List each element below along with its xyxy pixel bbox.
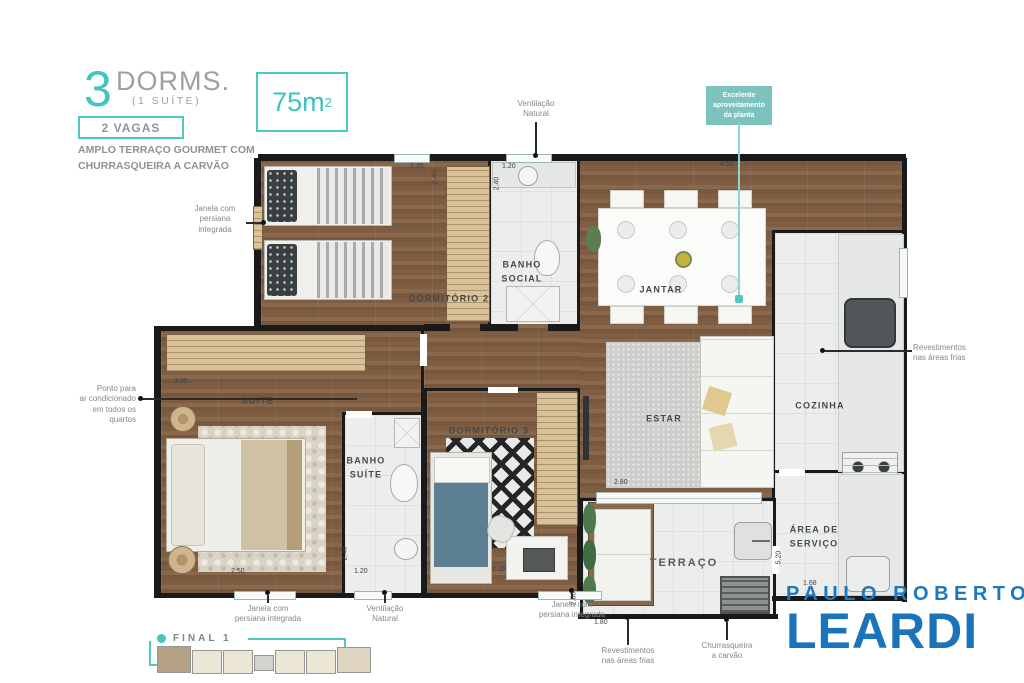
- toilet-icon: [390, 464, 418, 502]
- plate-icon: [721, 221, 739, 239]
- dimension: 3.95: [174, 378, 188, 385]
- ann-line: persiana: [184, 214, 246, 224]
- header-dorms-label: DORMS.: [116, 66, 230, 97]
- label-jantar: JANTAR: [639, 283, 682, 297]
- callout-line: da planta: [708, 111, 770, 121]
- pillow-icon: [267, 244, 297, 296]
- annotation-revestimentos-bottom: Revestimentos nas áreas frias: [590, 646, 666, 667]
- ann-line: nas áreas frias: [913, 353, 997, 363]
- annotation-revestimentos-right: Revestimentos nas áreas frias: [913, 343, 997, 364]
- plant-icon: [170, 406, 196, 432]
- room-hall: [424, 324, 580, 388]
- annotation-ventilacao-top: Ventilação Natural: [500, 99, 572, 120]
- blanket-striped-icon: [317, 168, 389, 224]
- annotation-ponto-ar: Ponto para ar condicionado em todos os q…: [56, 384, 136, 426]
- sink-icon: [518, 166, 538, 186]
- ann-line: persiana integrada: [530, 610, 614, 620]
- tagline-line2: CHURRASQUEIRA A CARVÃO: [78, 158, 255, 174]
- keyplan-dot: [157, 634, 166, 643]
- keyplan-building-footprint: [157, 646, 371, 674]
- keyplan-core: [254, 655, 274, 671]
- label-line: SOCIAL: [501, 272, 542, 286]
- leardi-logo: PAULO ROBERTO LEARDI: [786, 583, 1024, 656]
- leader-line: [627, 620, 629, 645]
- bed-double-icon: [166, 438, 306, 552]
- pillow-icon: [434, 457, 490, 483]
- door-suite: [420, 334, 427, 366]
- keyplan-label: FINAL 1: [173, 633, 232, 644]
- chair-icon: [718, 190, 752, 208]
- leader-dot: [261, 220, 266, 225]
- centerpiece-icon: [675, 251, 692, 268]
- leader-line: [141, 398, 357, 400]
- ann-line: Ponto para: [56, 384, 136, 394]
- churrasqueira-icon: [720, 576, 770, 614]
- cooktop-icon: [844, 298, 896, 348]
- sliding-door-rail: [597, 498, 761, 499]
- label-line: SUÍTE: [347, 468, 386, 482]
- plant-icon: [583, 504, 596, 534]
- wall-hall-top-b: [480, 324, 518, 331]
- label-line: BANHO: [501, 259, 542, 273]
- callout-leader-dot: [735, 295, 743, 303]
- pillow-icon: [708, 422, 737, 451]
- area-value: 75m: [272, 87, 325, 118]
- leader-line: [726, 622, 728, 640]
- dimension: 1.35: [410, 163, 424, 170]
- annotation-janela-bottom2: Janela com persiana integrada: [530, 600, 614, 621]
- keyplan-unit-highlighted: [157, 646, 191, 673]
- window-banho-social-top: [506, 154, 552, 163]
- ann-line: a carvão: [692, 651, 762, 661]
- keyplan-unit: [223, 650, 253, 674]
- ann-line: Ventilação: [500, 99, 572, 109]
- pillow-icon: [267, 170, 297, 222]
- label-line: SERVIÇO: [790, 537, 839, 551]
- dimension: 2.40: [431, 171, 438, 185]
- ann-line: Janela com: [530, 600, 614, 610]
- plant-icon: [586, 226, 601, 252]
- ann-line: Janela com: [184, 204, 246, 214]
- bed-single-1-icon: [264, 166, 392, 226]
- ann-line: Janela com: [226, 604, 310, 614]
- ann-line: persiana integrada: [226, 614, 310, 624]
- mattress-icon: [594, 509, 651, 601]
- dimension: 2.50: [231, 568, 245, 575]
- shower-icon: [506, 286, 560, 322]
- dimension: 2.15: [492, 566, 506, 573]
- ann-line: Churrasqueira: [692, 641, 762, 651]
- window-dorm2-top: [394, 154, 430, 163]
- header-tagline: AMPLO TERRAÇO GOURMET COM CHURRASQUEIRA …: [78, 142, 255, 175]
- plate-icon: [617, 221, 635, 239]
- ann-line: quartos: [56, 415, 136, 425]
- dimension: 2.45: [341, 547, 348, 561]
- pillow-icon: [171, 444, 205, 546]
- wall-hall-top-a: [424, 324, 450, 331]
- keyplan-unit: [192, 650, 222, 674]
- plate-icon: [669, 221, 687, 239]
- wall-left-suite: [154, 326, 159, 596]
- logo-line2: LEARDI: [786, 608, 1024, 656]
- callout-line: aproveitamento: [708, 101, 770, 111]
- leader-line: [535, 122, 537, 155]
- dimension: 2.80: [614, 479, 628, 486]
- leader-dot: [820, 348, 825, 353]
- plate-icon: [721, 275, 739, 293]
- floorplan-page: 3 DORMS. (1 SUÍTE) 2 VAGAS AMPLO TERRAÇO…: [0, 0, 1024, 683]
- tv-panel-icon: [583, 396, 589, 460]
- label-estar: ESTAR: [646, 412, 682, 426]
- leader-dot: [382, 590, 387, 595]
- annotation-janela-bottom1: Janela com persiana integrada: [226, 604, 310, 625]
- ann-line: integrada: [184, 225, 246, 235]
- chair-icon: [610, 306, 644, 324]
- blanket-icon: [434, 483, 488, 567]
- keyplan-unit: [306, 650, 336, 674]
- area-badge: 75m2: [256, 72, 348, 132]
- wall-hall-top-c: [548, 324, 580, 331]
- header-suite-label: (1 SUÍTE): [132, 95, 201, 107]
- chair-icon: [664, 306, 698, 324]
- keyplan-unit: [275, 650, 305, 674]
- sofa-icon: [700, 336, 774, 488]
- dimension: 2.40: [493, 177, 500, 191]
- blanket-icon: [241, 440, 287, 550]
- leader-line: [384, 595, 386, 603]
- label-dorm3: DORMITÓRIO 3: [449, 424, 529, 438]
- dimension: 5.20: [775, 551, 782, 565]
- plant-icon: [583, 540, 596, 570]
- ann-line: Revestimentos: [913, 343, 997, 353]
- faucet-icon: [752, 540, 770, 542]
- vagas-badge: 2 VAGAS: [78, 116, 184, 139]
- chair-icon: [718, 306, 752, 324]
- wall-top: [258, 154, 906, 159]
- ann-line: Natural: [356, 614, 414, 624]
- ann-line: Natural: [500, 109, 572, 119]
- pillow-icon: [702, 386, 732, 416]
- desk-icon: [506, 536, 568, 580]
- callout-box: Excelente aproveitamento da planta: [706, 86, 772, 125]
- leader-line: [267, 595, 269, 603]
- leader-dot: [138, 396, 143, 401]
- ann-line: em todos os: [56, 405, 136, 415]
- leader-line: [824, 350, 912, 352]
- label-dorm2: DORMITÓRIO 2: [409, 292, 489, 306]
- label-banho-social: BANHO SOCIAL: [501, 259, 542, 286]
- window-persiana-dorm2-left: [253, 206, 263, 250]
- wall-top-suite: [154, 326, 262, 331]
- door-dorm3: [488, 387, 518, 393]
- annotation-ventilacao-bottom: Ventilação Natural: [356, 604, 414, 625]
- callout-line: Excelente: [708, 91, 770, 101]
- laptop-icon: [523, 548, 555, 572]
- kitchen-counter-icon: [838, 234, 904, 472]
- leader-dot: [724, 617, 729, 622]
- plant-icon: [168, 546, 196, 574]
- shower-icon: [394, 418, 420, 448]
- sliding-door-terraco: [596, 492, 762, 504]
- terrace-sink-icon: [734, 522, 772, 560]
- dimension: 1.20: [502, 163, 516, 170]
- label-banho-suite: BANHO SUÍTE: [347, 455, 386, 482]
- leader-dot: [625, 615, 630, 620]
- wardrobe-suite-icon: [166, 334, 366, 372]
- dimension: 4.10: [720, 161, 734, 168]
- ann-line: nas áreas frias: [590, 656, 666, 666]
- throw-icon: [287, 440, 302, 550]
- window-cozinha-right: [899, 248, 908, 298]
- label-line: BANHO: [347, 455, 386, 469]
- keyplan-unit: [337, 647, 371, 673]
- annotation-janela-left: Janela com persiana integrada: [184, 204, 246, 235]
- ann-line: Revestimentos: [590, 646, 666, 656]
- door-cozinha-servico: [779, 469, 805, 476]
- bed-single-2-icon: [264, 240, 392, 300]
- ann-line: Ventilação: [356, 604, 414, 614]
- bed-single-3-icon: [430, 452, 492, 584]
- chair-icon: [610, 190, 644, 208]
- ann-line: ar condicionado: [56, 394, 136, 404]
- label-cozinha: COZINHA: [795, 399, 844, 413]
- keyplan-bracket-top: [248, 638, 346, 640]
- leader-dot: [569, 588, 574, 593]
- plate-icon: [617, 275, 635, 293]
- wardrobe-dorm3-icon: [536, 392, 578, 526]
- label-terraco: TERRAÇO: [650, 555, 718, 572]
- chair-icon: [664, 190, 698, 208]
- tagline-line1: AMPLO TERRAÇO GOURMET COM: [78, 142, 255, 158]
- leader-dot: [265, 590, 270, 595]
- dimension: 1.20: [354, 568, 368, 575]
- label-suite: SUÍTE: [242, 394, 275, 408]
- callout-leader-line: [738, 122, 740, 296]
- label-servico: ÁREA DE SERVIÇO: [790, 524, 839, 551]
- blanket-striped-icon: [317, 242, 389, 298]
- leader-dot: [533, 153, 538, 158]
- keyplan-bracket-left: [149, 641, 151, 666]
- door-banho-suite: [346, 411, 372, 418]
- header-dorm-count: 3: [84, 60, 112, 118]
- annotation-churrasqueira: Churrasqueira a carvão: [692, 641, 762, 662]
- sink-icon: [394, 538, 418, 560]
- area-exponent: 2: [325, 95, 332, 110]
- label-line: ÁREA DE: [790, 524, 839, 538]
- leader-line: [571, 593, 573, 599]
